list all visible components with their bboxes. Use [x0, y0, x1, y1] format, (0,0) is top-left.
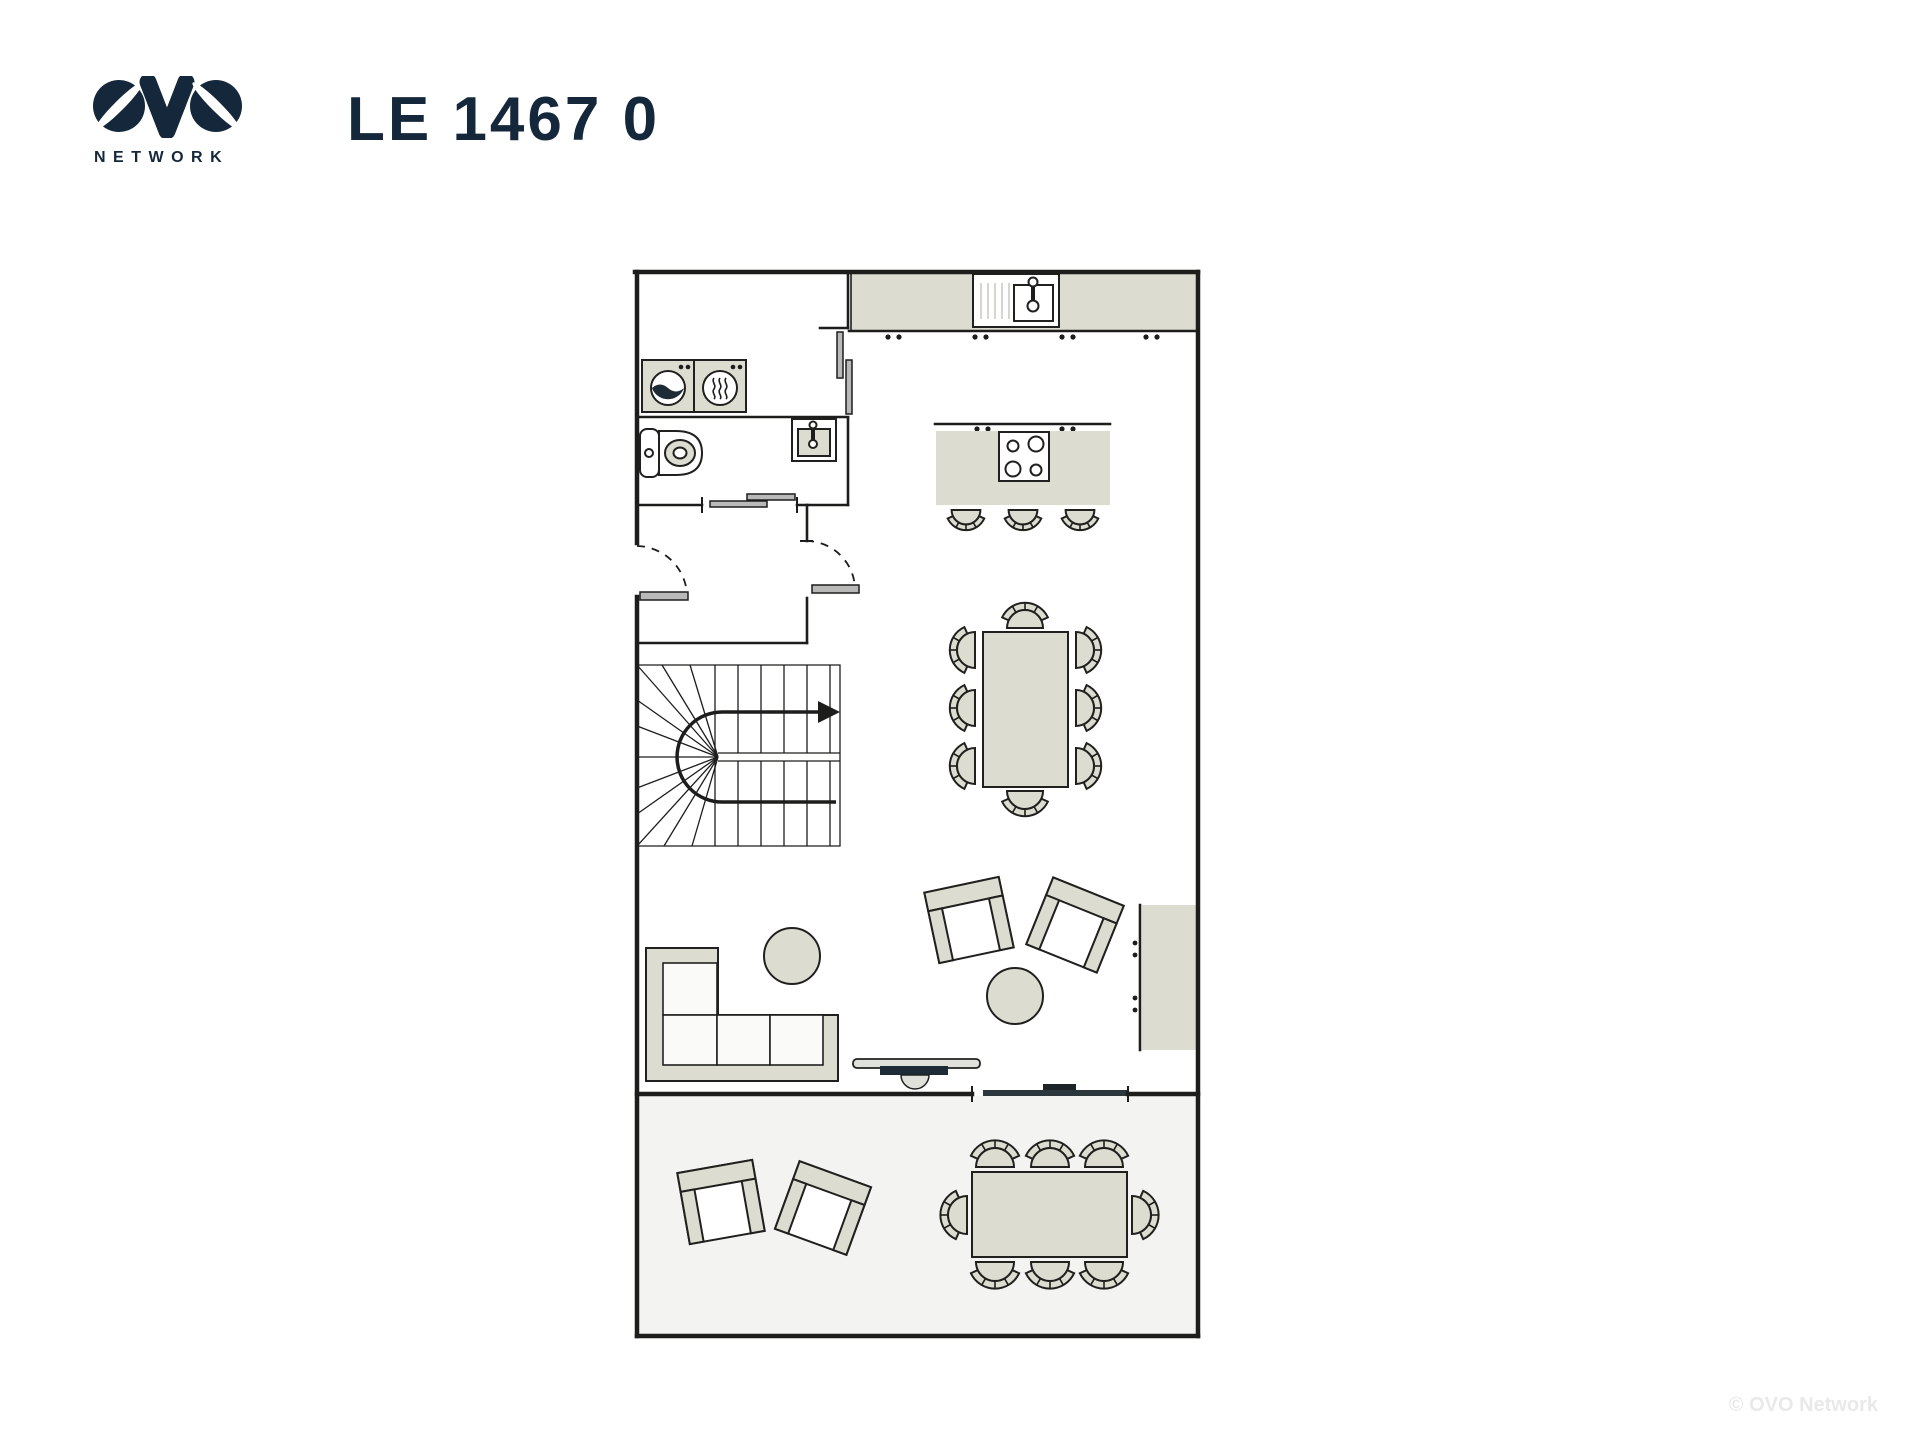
dining-chair	[1076, 627, 1101, 673]
dining-chair	[950, 743, 975, 789]
dining-chair	[950, 627, 975, 673]
door-swing-arc	[806, 541, 855, 589]
lounge	[646, 877, 1196, 1089]
terrace-sliding-door-panel	[1043, 1084, 1076, 1090]
dining-area	[950, 603, 1101, 816]
armchair	[924, 877, 1013, 963]
sliding-door-panel	[710, 501, 767, 507]
outdoor-armchair	[677, 1160, 764, 1244]
sideboard	[1133, 905, 1196, 1050]
coffee-table	[764, 928, 820, 984]
outdoor-dining-table	[972, 1172, 1127, 1257]
bar-stool	[1005, 510, 1042, 530]
dining-table	[983, 632, 1068, 787]
kitchen-counter	[849, 272, 1198, 340]
bar-stool	[948, 510, 985, 530]
dining-chair	[1076, 743, 1101, 789]
dining-chair	[950, 685, 975, 731]
stair-treads	[637, 665, 830, 846]
sliding-door-panel	[846, 360, 852, 414]
floor-plan	[0, 0, 1920, 1440]
side-table	[987, 968, 1043, 1024]
toilet-icon	[640, 429, 702, 477]
bar-stool	[1062, 510, 1099, 530]
sliding-door-panel	[747, 494, 795, 500]
wc	[640, 419, 836, 477]
sliding-door-panel	[837, 332, 843, 378]
hob-icon	[999, 432, 1049, 481]
dining-chair	[1002, 603, 1048, 628]
watermark: © OVO Network	[1729, 1394, 1878, 1417]
dining-chair	[1002, 791, 1048, 816]
door-leaf	[812, 585, 859, 593]
kitchen-island	[935, 424, 1110, 530]
entry-door-leaf	[640, 592, 688, 600]
staircase	[637, 665, 840, 846]
cabinet-handles	[885, 334, 1159, 339]
terrace-sliding-door	[983, 1090, 1127, 1096]
dining-chair	[1076, 685, 1101, 731]
tv-console-icon	[853, 1059, 980, 1089]
door-swing-arc	[637, 546, 687, 595]
armchair	[1026, 877, 1123, 972]
laundry	[642, 360, 746, 412]
hand-basin-icon	[792, 419, 836, 461]
kitchen-sink-icon	[973, 274, 1059, 327]
